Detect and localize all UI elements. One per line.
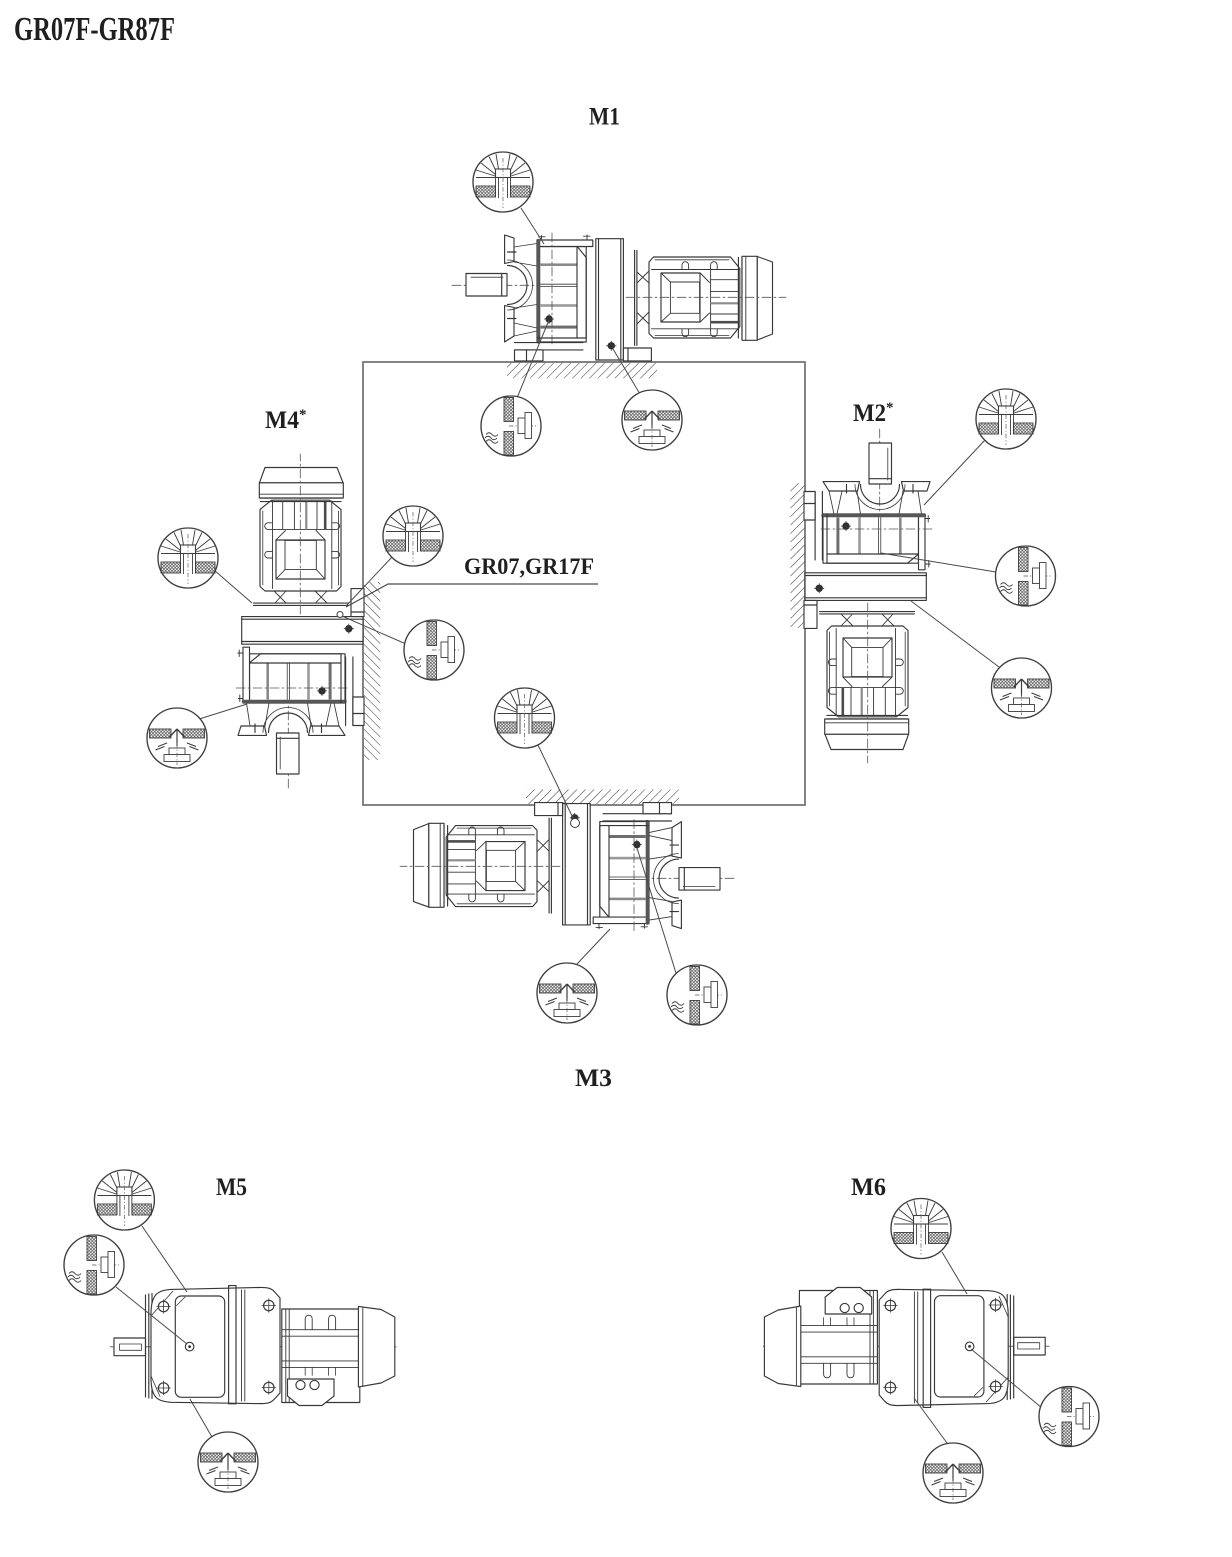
svg-text:M5: M5 [216, 1174, 247, 1201]
svg-text:M6: M6 [851, 1174, 886, 1201]
svg-text:M4*: M4* [265, 407, 307, 434]
svg-text:M3: M3 [575, 1065, 612, 1092]
svg-text:M1: M1 [589, 104, 620, 131]
svg-text:GR07,GR17F: GR07,GR17F [464, 554, 594, 579]
svg-text:GR07F-GR87F: GR07F-GR87F [14, 11, 175, 48]
svg-text:M2*: M2* [853, 400, 894, 427]
